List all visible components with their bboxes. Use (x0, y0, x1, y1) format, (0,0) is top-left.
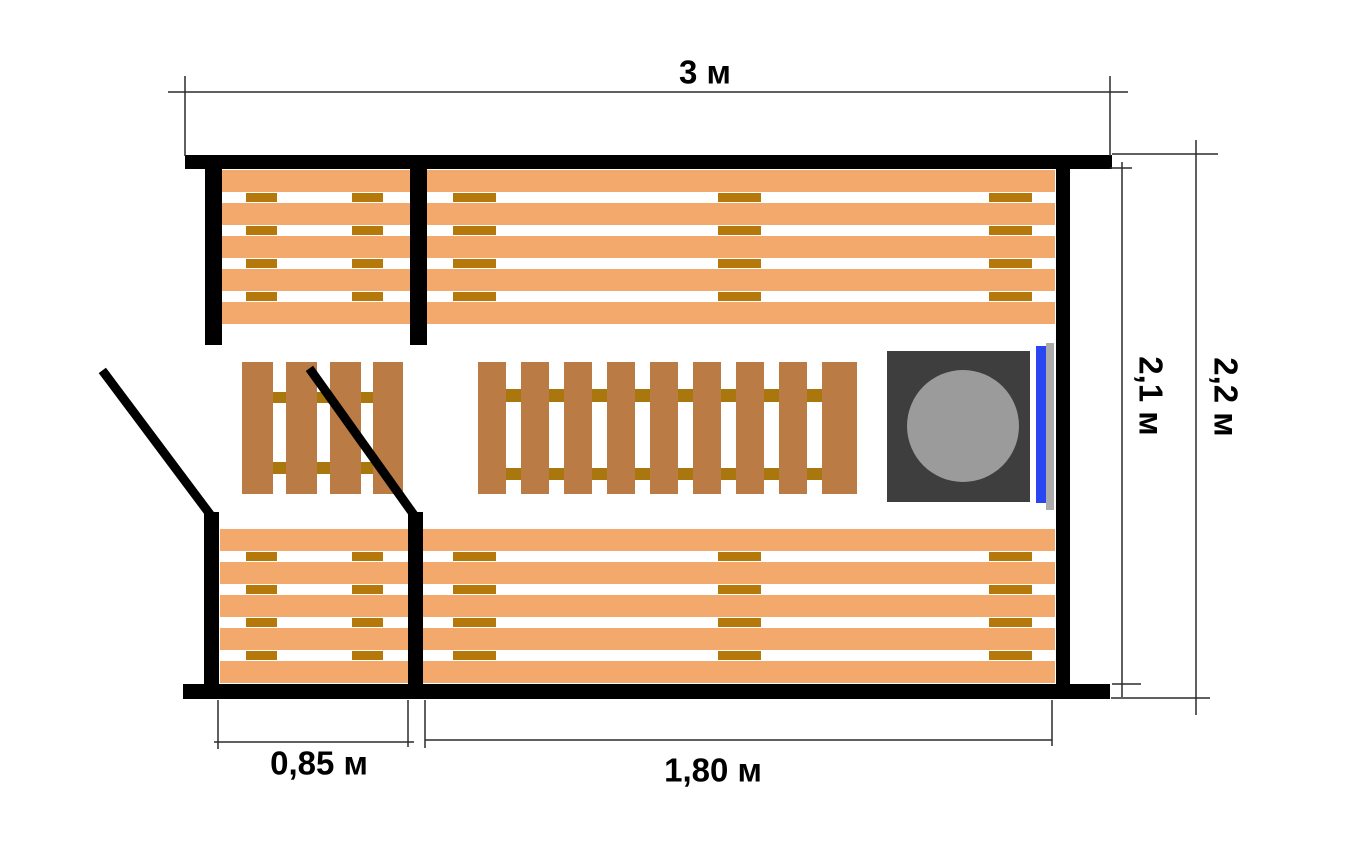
bench-plank (220, 595, 408, 617)
bench-spacer (718, 651, 761, 660)
bench-plank (220, 562, 408, 584)
bench-plank (423, 562, 1055, 584)
bench-spacer (989, 618, 1032, 627)
bench-spacer (718, 585, 761, 594)
bench-plank (222, 236, 410, 258)
sauna-stove (887, 343, 1054, 510)
bench-spacer (453, 585, 496, 594)
dim-bench-section (425, 700, 1052, 748)
bench-spacer (453, 259, 496, 268)
bench-plank (220, 628, 408, 650)
bench-plank (427, 170, 1055, 192)
duckboard-slat (736, 362, 764, 494)
bench-spacer (352, 618, 383, 627)
dim-label-width-top: 3 м (679, 54, 731, 91)
bench-plank (423, 595, 1055, 617)
bench-top-left (222, 170, 410, 324)
bench-spacer (246, 259, 277, 268)
bench-spacer (718, 292, 761, 301)
bench-spacer (352, 651, 383, 660)
bench-spacer (246, 552, 277, 561)
bench-spacer (453, 226, 496, 235)
bench-spacer (246, 585, 277, 594)
sauna-floor-plan-page: 3 м 2,1 м 2,2 м 0,85 м 1,80 м (0, 0, 1346, 850)
dim-label-door-section: 0,85 м (270, 745, 368, 782)
bench-top-main (427, 170, 1055, 324)
bench-spacer (352, 585, 383, 594)
bench-plank (220, 529, 408, 551)
dim-label-height-inner: 2,1 м (1133, 356, 1170, 435)
duckboard-slat (822, 362, 857, 494)
bench-spacer (246, 193, 277, 202)
bench-plank (427, 302, 1055, 324)
bench-plank (222, 170, 410, 192)
sauna-floor-plan: 3 м 2,1 м 2,2 м 0,85 м 1,80 м (0, 0, 1346, 850)
bench-spacer (989, 226, 1032, 235)
wall-top (185, 155, 1112, 169)
stove-glass-strip (1036, 346, 1046, 503)
stove-plate (907, 370, 1019, 482)
bench-plank (423, 661, 1055, 683)
bench-plank (427, 236, 1055, 258)
duckboard-slat (478, 362, 506, 494)
bench-spacer (246, 651, 277, 660)
bench-plank (427, 269, 1055, 291)
bench-spacer (989, 651, 1032, 660)
bench-plank (222, 203, 410, 225)
dim-label-bench-section: 1,80 м (664, 752, 762, 789)
duckboard-slat (607, 362, 635, 494)
bench-spacer (989, 292, 1032, 301)
bench-spacer (989, 259, 1032, 268)
bench-spacer (718, 618, 761, 627)
bench-spacer (718, 193, 761, 202)
wall-right (1056, 160, 1070, 690)
bench-spacer (989, 193, 1032, 202)
bench-spacer (989, 552, 1032, 561)
dim-width-top (168, 76, 1128, 156)
bench-plank (220, 661, 408, 683)
duckboard-slat (564, 362, 592, 494)
bench-spacer (989, 585, 1032, 594)
wall-partition-lower (408, 512, 423, 684)
bench-spacer (352, 226, 383, 235)
bench-spacer (352, 193, 383, 202)
bench-plank (423, 628, 1055, 650)
bench-plank (423, 529, 1055, 551)
duckboard-slat (779, 362, 807, 494)
duckboard-large (478, 362, 857, 494)
wall-partition-upper (410, 168, 427, 345)
duckboard-slat (693, 362, 721, 494)
bench-spacer (453, 651, 496, 660)
bench-spacer (453, 193, 496, 202)
door-swing-entrance (105, 374, 209, 513)
wall-left-lower (204, 512, 219, 684)
duckboard-slat (650, 362, 678, 494)
duckboard-slat (286, 362, 317, 494)
wall-left-upper (205, 168, 222, 345)
bench-spacer (718, 226, 761, 235)
bench-spacer (352, 292, 383, 301)
duckboard-slat (521, 362, 549, 494)
bench-bottom-left (220, 529, 408, 683)
stove-vent-strip (1046, 343, 1054, 510)
bench-plank (222, 269, 410, 291)
bench-spacer (246, 226, 277, 235)
bench-spacer (352, 259, 383, 268)
bench-spacer (453, 292, 496, 301)
wall-bottom (183, 684, 1110, 699)
bench-spacer (352, 552, 383, 561)
bench-plank (222, 302, 410, 324)
duckboards (242, 362, 857, 494)
bench-spacer (453, 552, 496, 561)
duckboard-slat (242, 362, 273, 494)
dim-label-height-outer: 2,2 м (1208, 357, 1245, 436)
bench-plank (427, 203, 1055, 225)
dim-door-section (214, 700, 414, 749)
bench-spacer (718, 259, 761, 268)
bench-spacer (246, 618, 277, 627)
bench-spacer (718, 552, 761, 561)
bench-spacer (246, 292, 277, 301)
bench-bottom-main (423, 529, 1055, 683)
bench-spacer (453, 618, 496, 627)
